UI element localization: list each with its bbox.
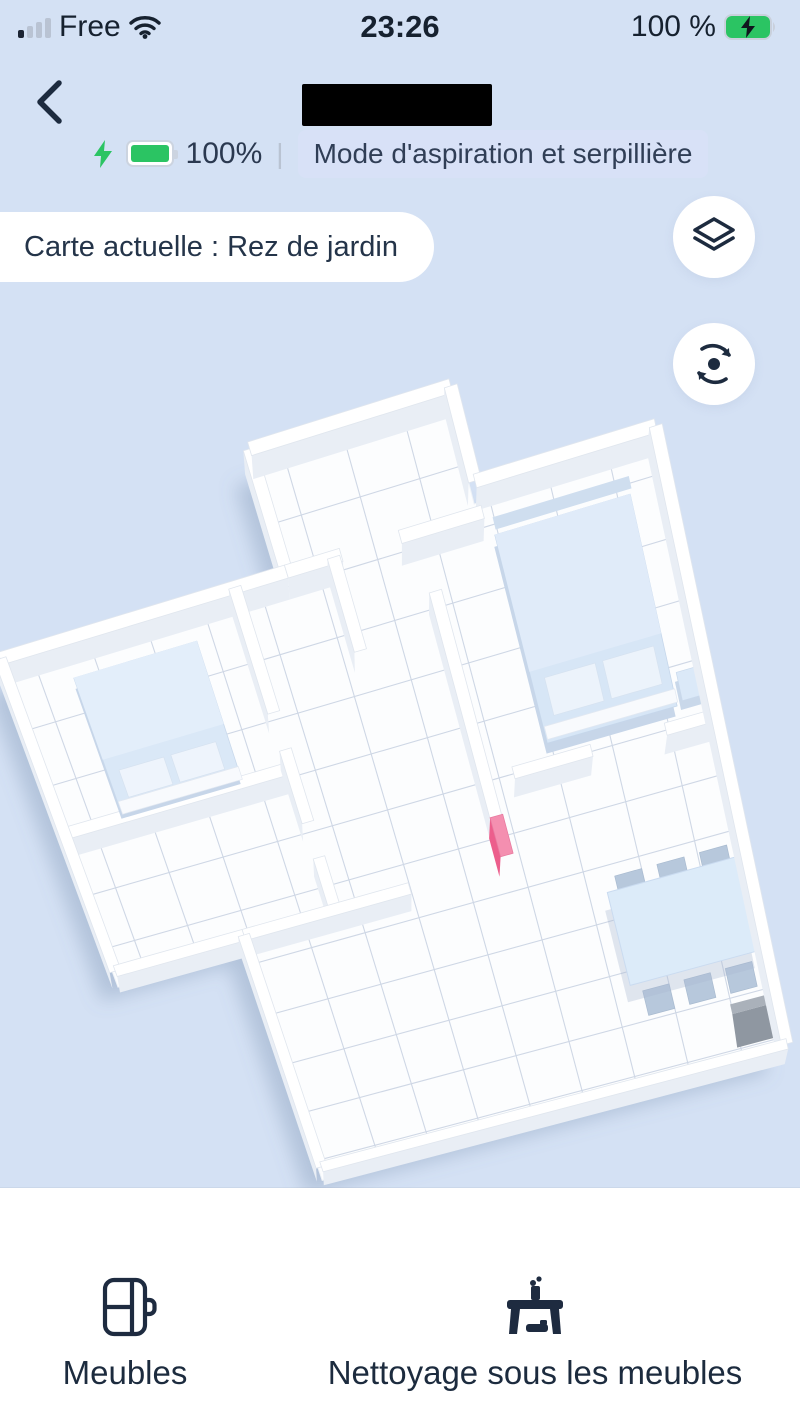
carrier-label: Free (59, 10, 121, 44)
layers-icon (690, 214, 738, 260)
device-status-row: 100% | Mode d'aspiration et serpillière (0, 130, 800, 178)
charging-bolt-icon (92, 139, 114, 169)
furniture-button[interactable]: Meubles (40, 1274, 210, 1392)
cleaning-mode-badge: Mode d'aspiration et serpillière (298, 130, 709, 178)
wifi-icon (129, 15, 161, 39)
robot-battery-icon (126, 140, 174, 167)
divider: | (276, 138, 283, 170)
map-rotate-button[interactable] (673, 323, 755, 405)
back-button[interactable] (28, 76, 76, 128)
clean-under-furniture-button[interactable]: Nettoyage sous les meubles (295, 1274, 775, 1392)
current-map-label: Carte actuelle : Rez de jardin (24, 231, 398, 264)
battery-percent-label: 100 % (631, 10, 716, 44)
bottom-sheet: Meubles Nettoyage sous les meubles (0, 1188, 800, 1422)
floor-map-3d[interactable] (0, 0, 800, 1200)
map-layers-button[interactable] (673, 196, 755, 278)
furniture-icon (92, 1274, 158, 1340)
signal-strength-icon (18, 16, 51, 38)
device-name-redacted (302, 84, 492, 126)
furniture-label: Meubles (63, 1354, 188, 1392)
robot-battery-percent: 100% (186, 137, 263, 171)
battery-charging-icon (724, 13, 778, 41)
table-cleaning-icon (502, 1274, 568, 1340)
status-bar: Free 23:26 100 % (0, 0, 800, 48)
rotate-icon (689, 339, 739, 389)
clean-under-furniture-label: Nettoyage sous les meubles (328, 1354, 743, 1392)
app-screen: Free 23:26 100 % 100% (0, 0, 800, 1422)
chevron-left-icon (28, 76, 76, 128)
current-map-pill[interactable]: Carte actuelle : Rez de jardin (0, 212, 434, 282)
